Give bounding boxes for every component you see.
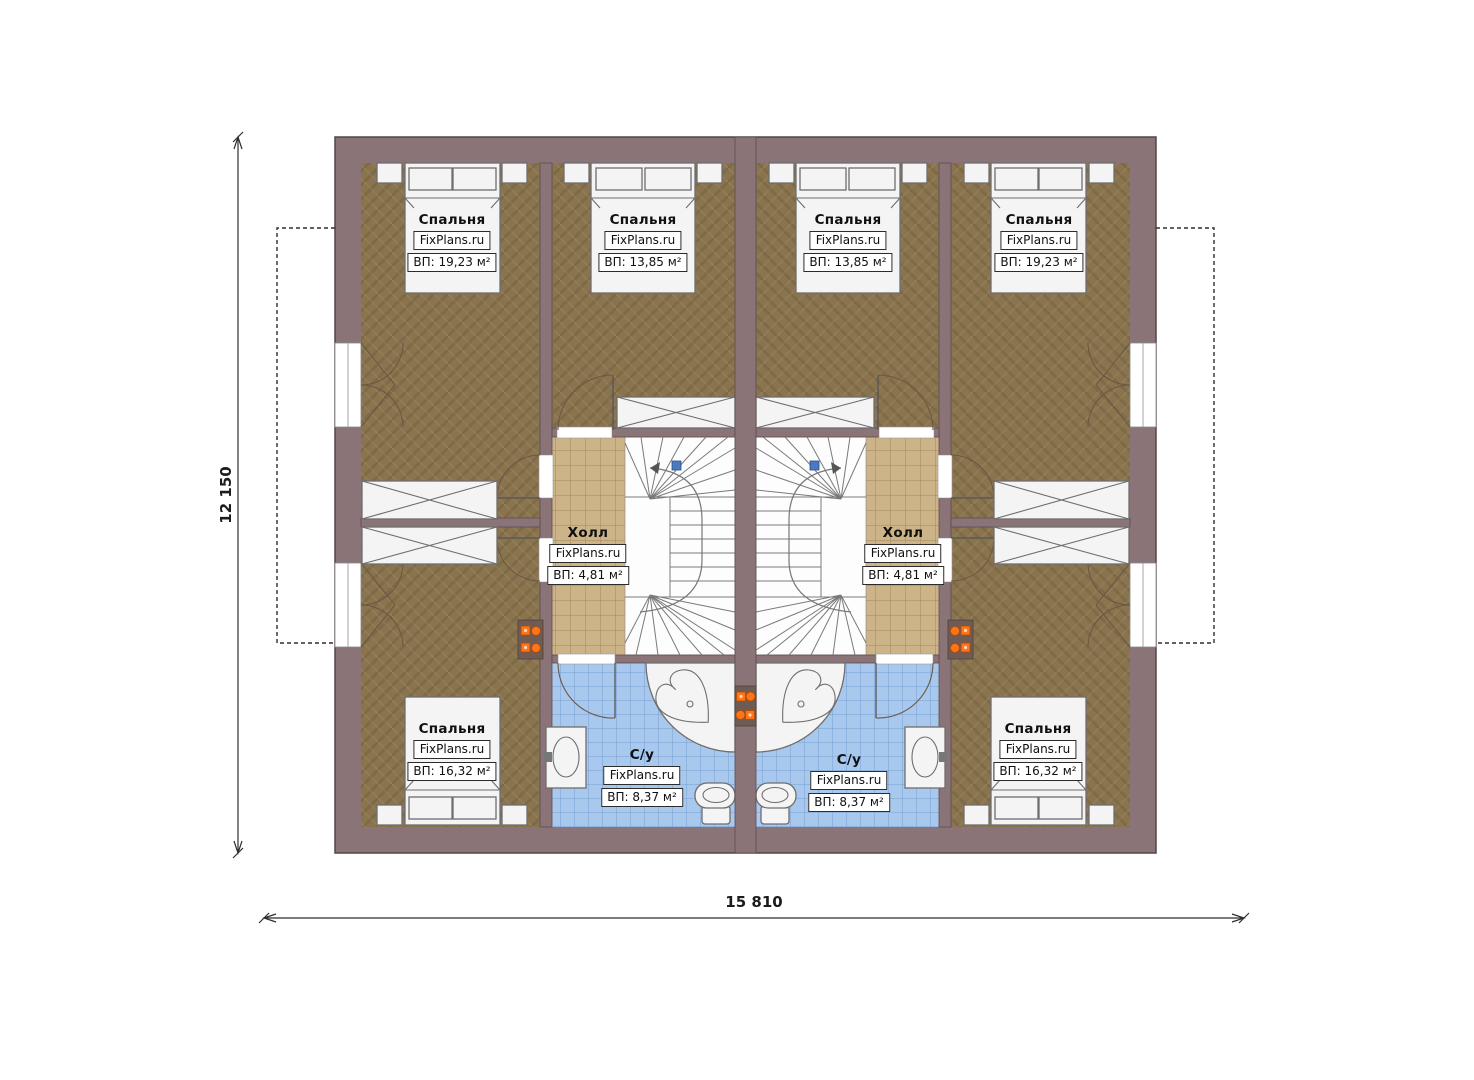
- floor-plan-page: 12 150 15 810 Спальня FixPlans.ru ВП: 19…: [0, 0, 1474, 1080]
- watermark: FixPlans.ru: [865, 544, 942, 563]
- room-area: ВП: 13,85 м²: [598, 253, 687, 272]
- watermark: FixPlans.ru: [550, 544, 627, 563]
- watermark: FixPlans.ru: [811, 771, 888, 790]
- room-label-bedroom-top-mid-left: Спальня FixPlans.ru ВП: 13,85 м²: [598, 213, 687, 272]
- room-name: Холл: [568, 526, 609, 541]
- room-label-bedroom-top-right: Спальня FixPlans.ru ВП: 19,23 м²: [994, 213, 1083, 272]
- room-area: ВП: 16,32 м²: [993, 762, 1082, 781]
- dimension-label-vertical: 12 150: [217, 466, 235, 523]
- room-name: Спальня: [815, 213, 882, 228]
- room-area: ВП: 8,37 м²: [808, 793, 890, 812]
- room-name: Холл: [883, 526, 924, 541]
- room-name: Спальня: [1006, 213, 1073, 228]
- room-area: ВП: 19,23 м²: [407, 253, 496, 272]
- watermark: FixPlans.ru: [604, 766, 681, 785]
- room-area: ВП: 4,81 м²: [547, 566, 629, 585]
- party-wall: [735, 137, 756, 853]
- dimension-horizontal: 15 810: [259, 893, 1249, 923]
- room-label-bathroom-left: С/у FixPlans.ru ВП: 8,37 м²: [601, 748, 683, 807]
- room-label-hall-right: Холл FixPlans.ru ВП: 4,81 м²: [862, 526, 944, 585]
- room-area: ВП: 13,85 м²: [803, 253, 892, 272]
- room-name: Спальня: [1005, 722, 1072, 737]
- watermark: FixPlans.ru: [414, 740, 491, 759]
- vent-stack-center: [735, 686, 756, 726]
- watermark: FixPlans.ru: [1000, 740, 1077, 759]
- room-label-bedroom-top-left: Спальня FixPlans.ru ВП: 19,23 м²: [407, 213, 496, 272]
- room-label-bedroom-top-mid-right: Спальня FixPlans.ru ВП: 13,85 м²: [803, 213, 892, 272]
- watermark: FixPlans.ru: [414, 231, 491, 250]
- room-name: Спальня: [610, 213, 677, 228]
- room-label-hall-left: Холл FixPlans.ru ВП: 4,81 м²: [547, 526, 629, 585]
- room-area: ВП: 19,23 м²: [994, 253, 1083, 272]
- room-area: ВП: 8,37 м²: [601, 788, 683, 807]
- watermark: FixPlans.ru: [605, 231, 682, 250]
- room-label-bathroom-right: С/у FixPlans.ru ВП: 8,37 м²: [808, 753, 890, 812]
- room-label-bedroom-bottom-right: Спальня FixPlans.ru ВП: 16,32 м²: [993, 722, 1082, 781]
- dimension-vertical: 12 150: [217, 132, 243, 858]
- room-name: Спальня: [419, 722, 486, 737]
- watermark: FixPlans.ru: [1001, 231, 1078, 250]
- plan-canvas: 12 150 15 810: [0, 0, 1474, 1080]
- room-label-bedroom-bottom-left: Спальня FixPlans.ru ВП: 16,32 м²: [407, 722, 496, 781]
- room-name: Спальня: [419, 213, 486, 228]
- room-name: С/у: [837, 753, 862, 768]
- room-area: ВП: 4,81 м²: [862, 566, 944, 585]
- room-name: С/у: [630, 748, 655, 763]
- watermark: FixPlans.ru: [810, 231, 887, 250]
- dimension-label-horizontal: 15 810: [725, 893, 782, 911]
- room-area: ВП: 16,32 м²: [407, 762, 496, 781]
